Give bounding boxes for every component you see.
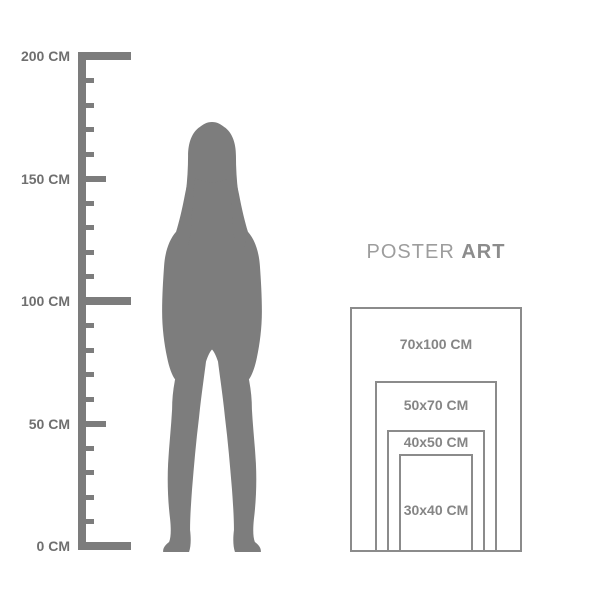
ruler-tick-minor: [78, 152, 94, 157]
ruler-tick-minor: [78, 225, 94, 230]
poster-size-guide: 200 CM150 CM100 CM50 CM0 CM POSTER ART 7…: [0, 0, 600, 600]
ruler-tick-minor: [78, 103, 94, 108]
ruler-tick-minor: [78, 250, 94, 255]
ruler-label-150: 150 CM: [0, 170, 70, 188]
brand-name-bold: ART: [461, 241, 505, 263]
woman-silhouette: [159, 122, 269, 553]
ruler-tick-minor: [78, 78, 94, 83]
ruler-tick-minor: [78, 127, 94, 132]
ruler-tick-major: [78, 52, 131, 60]
poster-size-label-70x100: 70x100 CM: [366, 335, 506, 353]
ruler-tick-medium: [78, 421, 106, 427]
ruler-tick-minor: [78, 201, 94, 206]
ruler-label-0: 0 CM: [0, 537, 70, 555]
ruler-tick-minor: [78, 470, 94, 475]
ruler-tick-major: [78, 297, 131, 305]
ruler-tick-medium: [78, 176, 106, 182]
ruler-tick-minor: [78, 519, 94, 524]
ruler-label-50: 50 CM: [0, 415, 70, 433]
ruler-tick-minor: [78, 446, 94, 451]
ruler-label-100: 100 CM: [0, 292, 70, 310]
ruler-tick-minor: [78, 274, 94, 279]
poster-size-label-50x70: 50x70 CM: [366, 396, 506, 414]
poster-size-label-30x40: 30x40 CM: [366, 501, 506, 519]
brand-name-regular: POSTER: [367, 241, 455, 263]
ruler-tick-minor: [78, 323, 94, 328]
ruler-label-200: 200 CM: [0, 47, 70, 65]
ruler-tick-major: [78, 542, 131, 550]
ruler-tick-minor: [78, 348, 94, 353]
ruler-tick-minor: [78, 495, 94, 500]
ruler-tick-minor: [78, 372, 94, 377]
ruler-tick-minor: [78, 397, 94, 402]
poster-size-label-40x50: 40x50 CM: [366, 433, 506, 451]
brand-title: POSTER ART: [346, 241, 526, 264]
